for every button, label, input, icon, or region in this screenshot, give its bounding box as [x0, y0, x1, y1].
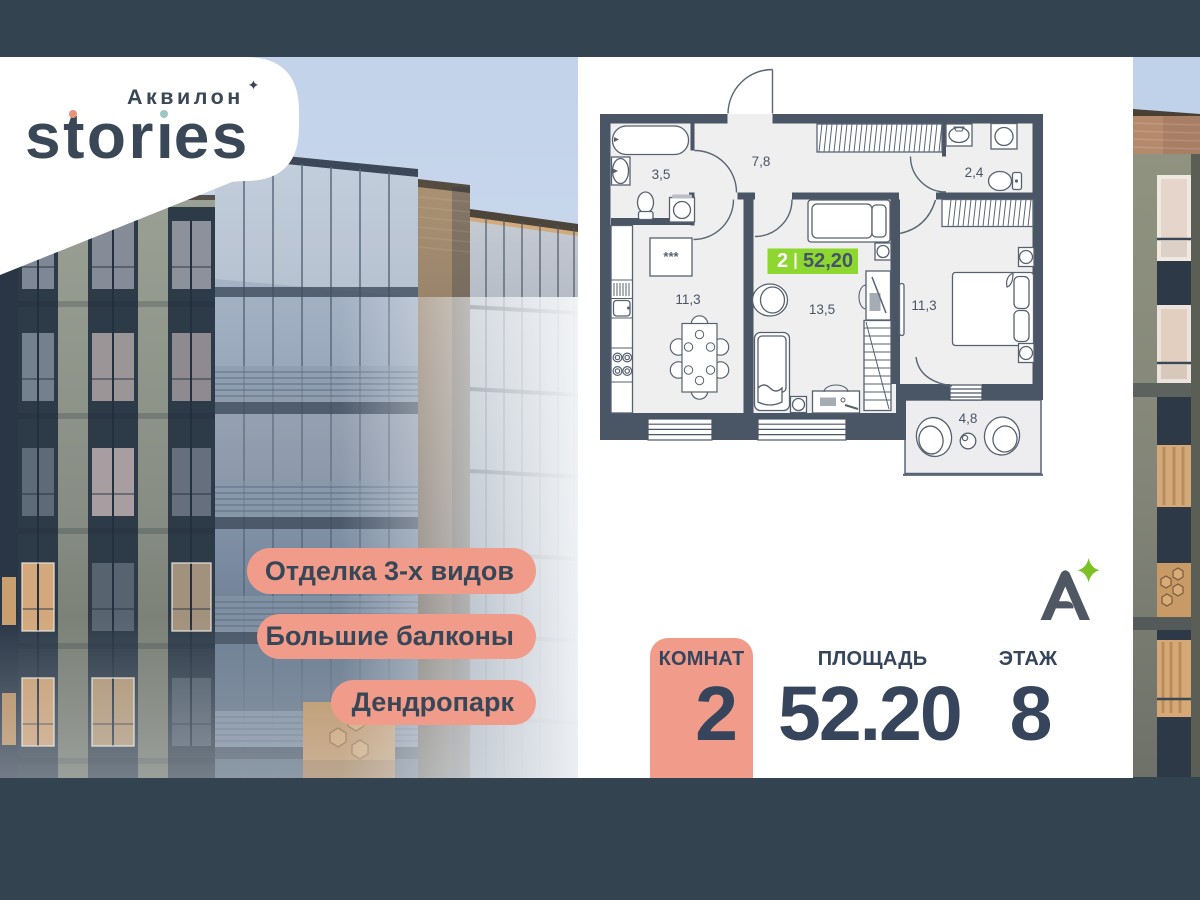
svg-text:***: *** [663, 249, 679, 264]
svg-text:11,3: 11,3 [675, 292, 700, 307]
svg-text:2,4: 2,4 [965, 165, 984, 180]
svg-text:13,5: 13,5 [809, 302, 835, 317]
svg-text:7,8: 7,8 [752, 154, 771, 169]
svg-text:52,20: 52,20 [803, 250, 853, 272]
svg-text:4,8: 4,8 [959, 411, 978, 426]
svg-text:11,3: 11,3 [911, 298, 936, 313]
svg-text:3,5: 3,5 [652, 167, 671, 182]
svg-text:2: 2 [777, 250, 788, 272]
